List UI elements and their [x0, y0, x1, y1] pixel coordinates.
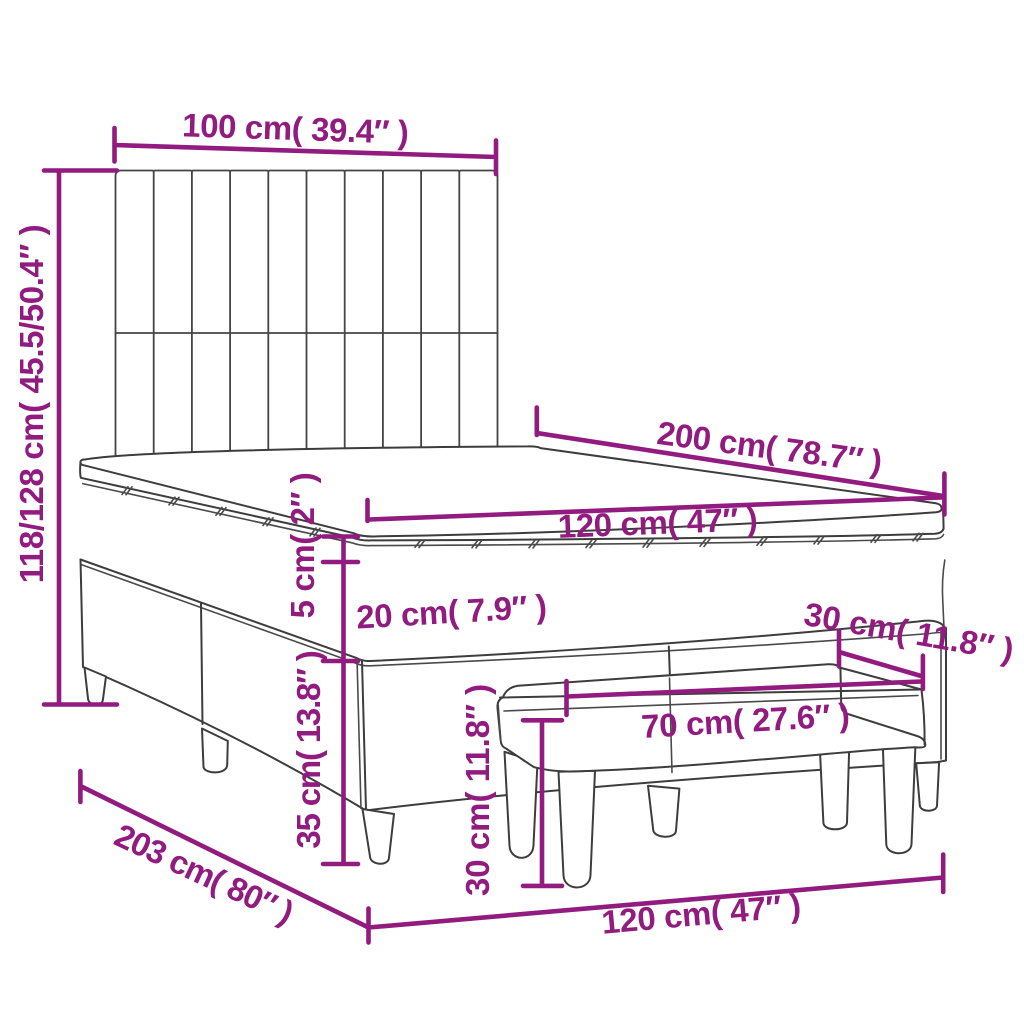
svg-text:5 cm( 2″ ): 5 cm( 2″ ) [284, 473, 321, 619]
svg-text:30 cm( 11.8″ ): 30 cm( 11.8″ ) [801, 595, 1016, 668]
svg-text:100 cm( 39.4″ ): 100 cm( 39.4″ ) [182, 106, 409, 150]
svg-text:30 cm( 11.8″ ): 30 cm( 11.8″ ) [459, 684, 496, 896]
svg-text:203 cm( 80″ ): 203 cm( 80″ ) [109, 816, 298, 931]
svg-text:118/128 cm( 45.5/50.4″ ): 118/128 cm( 45.5/50.4″ ) [13, 225, 50, 583]
svg-text:35 cm( 13.8″ ): 35 cm( 13.8″ ) [290, 651, 327, 848]
svg-text:120 cm( 47″ ): 120 cm( 47″ ) [557, 500, 758, 545]
svg-text:120 cm( 47″ ): 120 cm( 47″ ) [600, 886, 802, 940]
svg-text:20 cm( 7.9″ ): 20 cm( 7.9″ ) [355, 587, 547, 635]
